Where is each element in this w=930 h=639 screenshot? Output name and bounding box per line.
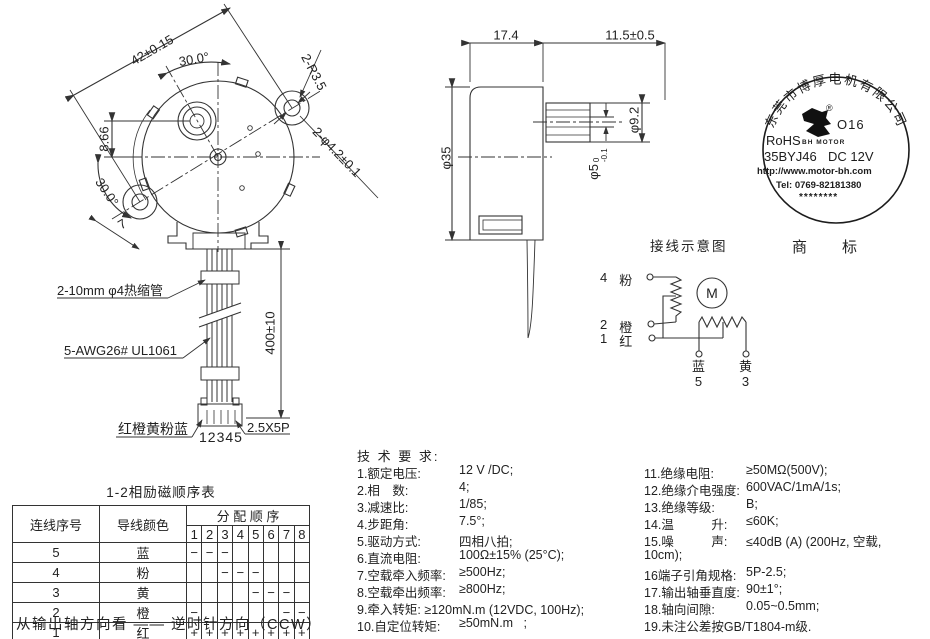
tech-requirements-right: 11.绝缘电阻:≥50MΩ(500V); 12.绝缘介电强度:600VAC/1m…	[644, 463, 930, 633]
dim-side-body-dia: φ35	[440, 147, 453, 170]
table-header-row: 连线序号 导线颜色 分 配 顺 序	[13, 506, 310, 526]
seq-cell: −	[217, 543, 232, 563]
table-row: 5 蓝 − − −	[13, 543, 310, 563]
tech-item: 9.牵入转矩: ≥120mN.m (12VDC, 100Hz);	[357, 599, 643, 616]
seq-cell	[187, 583, 202, 603]
tech-item-value: 5P-2.5;	[746, 565, 786, 579]
step-col: 6	[263, 526, 278, 543]
tech-item: 8.空载牵出频率:≥800Hz;	[357, 582, 643, 599]
tech-item: 19.未注公差按GB/T1804-m级.	[644, 616, 930, 633]
tech-item-value: ≥50MΩ(500V);	[746, 463, 828, 477]
tech-item: 2.相 数:4;	[357, 480, 643, 497]
seq-cell: −	[263, 583, 278, 603]
step-col: 1	[187, 526, 202, 543]
seq-cell	[248, 543, 263, 563]
terminal-3-color: 黄	[739, 359, 752, 374]
seq-cell: −	[233, 563, 248, 583]
stamp-code: O16	[837, 117, 865, 132]
dim-side-shaft-length: 11.5±0.5	[605, 29, 655, 42]
step-col: 2	[202, 526, 217, 543]
wiring-diagram-drawing	[647, 274, 749, 357]
wire-number-cell: 4	[13, 563, 100, 583]
step-col: 4	[233, 526, 248, 543]
shaft-dia-tolerance: 0-0.1	[593, 148, 609, 162]
tech-item-label: 19.未注公差按GB/T1804-m级.	[644, 616, 811, 635]
phase-table-title: 1-2相励磁顺序表	[12, 481, 310, 501]
header-sequence: 分 配 顺 序	[187, 506, 310, 526]
stamp-rohs: RoHS	[766, 133, 801, 148]
tech-item: 12.绝缘介电强度:600VAC/1mA/1s;	[644, 480, 930, 497]
pin-numbers-label: 12345	[199, 430, 243, 444]
rotation-direction-note: 从输出轴方向看 —— 逆时针方向（CCW）	[16, 613, 322, 634]
terminal-1-red: 1 红	[600, 331, 632, 350]
dim-front-offset: 8.66	[98, 126, 111, 151]
seq-cell	[263, 563, 278, 583]
terminal-3-yellow: 黄 3	[739, 359, 752, 389]
tech-item: 11.绝缘电阻:≥50MΩ(500V);	[644, 463, 930, 480]
front-view-drawing	[70, 4, 378, 252]
stamp-company-arc-text: 东莞市博厚电机有限公司	[762, 72, 910, 130]
tech-item-value: 12 V /DC;	[459, 463, 513, 477]
seq-cell: −	[202, 543, 217, 563]
stamp-tel: Tel: 0769-82181380	[776, 180, 861, 191]
seq-cell	[233, 543, 248, 563]
seq-cell	[294, 583, 309, 603]
terminal-4-number: 4	[600, 270, 607, 289]
wire-spec-label: 5-AWG26# UL1061	[64, 344, 177, 357]
tech-item: 14.温 升:≤60K;	[644, 514, 930, 531]
terminal-4-color: 粉	[619, 270, 632, 289]
dim-cable-length: 400±10	[264, 311, 277, 354]
engineering-drawing-page: 东莞市博厚电机有限公司 42±0.15 30.0° 8.66 30.0° 7 2…	[0, 0, 930, 639]
stamp-model: 35BYJ46	[764, 149, 817, 164]
stamp-voltage: DC 12V	[828, 149, 874, 164]
tech-item: 15.噪 声:≤40dB (A) (200Hz, 空载,	[644, 531, 930, 548]
dim-side-shaft-dia: φ50-0.1	[587, 148, 609, 179]
tech-item: 16端子引角规格:5P-2.5;	[644, 565, 930, 582]
seq-cell: −	[279, 583, 294, 603]
tech-item-label: 10.自定位转矩:	[357, 616, 459, 635]
tol-lower: -0.1	[601, 148, 609, 162]
tech-item-value: ≥500Hz;	[459, 565, 505, 579]
seq-cell	[263, 543, 278, 563]
terminal-1-number: 1	[600, 331, 607, 350]
seq-cell	[233, 583, 248, 603]
tech-item: 13.绝缘等级:B;	[644, 497, 930, 514]
terminal-1-color: 红	[619, 331, 632, 350]
tech-item-value: 100Ω±15% (25°C);	[459, 548, 564, 562]
tech-item: 10cm);	[644, 548, 930, 565]
tech-item-value: ≥800Hz;	[459, 582, 505, 596]
tech-item: 7.空载牵入频率:≥500Hz;	[357, 565, 643, 582]
seq-cell	[202, 563, 217, 583]
seq-cell	[294, 543, 309, 563]
tech-item-value: 600VAC/1mA/1s;	[746, 480, 841, 494]
seq-cell	[279, 563, 294, 583]
tech-item-value: 4;	[459, 480, 469, 494]
stamp-stars: ********	[799, 192, 838, 203]
trademark-label: 商标	[792, 240, 892, 255]
shaft-dia-value: φ5	[586, 164, 601, 180]
tech-item: 4.步距角:7.5°;	[357, 514, 643, 531]
tech-requirements-title: 技 术 要 求:	[357, 446, 643, 463]
terminal-5-color: 蓝	[692, 359, 705, 374]
tech-requirements-left: 技 术 要 求: 1.额定电压:12 V /DC; 2.相 数:4; 3.减速比…	[357, 446, 643, 633]
seq-cell: −	[217, 563, 232, 583]
wire-number-cell: 3	[13, 583, 100, 603]
tech-item: 18.轴向间隙:0.05~0.5mm;	[644, 599, 930, 616]
step-col: 3	[217, 526, 232, 543]
table-row: 4 粉 − − −	[13, 563, 310, 583]
tech-item-label: 10cm);	[644, 548, 746, 562]
tech-item-value: 1/85;	[459, 497, 487, 511]
stamp-url: http://www.motor-bh.com	[757, 166, 872, 177]
wire-colors-label: 红橙黄粉蓝	[118, 422, 188, 436]
wiring-diagram-title: 接线示意图	[650, 240, 728, 254]
registered-mark: ®	[826, 103, 833, 113]
terminal-3-number: 3	[742, 374, 749, 389]
seq-cell: −	[187, 543, 202, 563]
dim-side-depth: 17.4	[493, 29, 518, 42]
tech-item-value: 0.05~0.5mm;	[746, 599, 819, 613]
step-col: 5	[248, 526, 263, 543]
tech-item: 3.减速比:1/85;	[357, 497, 643, 514]
header-wire-number: 连线序号	[13, 506, 100, 543]
table-row: 3 黄 − − −	[13, 583, 310, 603]
seq-cell	[217, 583, 232, 603]
motor-symbol: M	[706, 286, 718, 300]
seq-cell	[294, 563, 309, 583]
terminal-5-blue: 蓝 5	[692, 359, 705, 389]
seq-cell: −	[248, 563, 263, 583]
tech-item-value: 90±1°;	[746, 582, 782, 596]
seq-cell	[202, 583, 217, 603]
tech-item: 17.输出轴垂直度:90±1°;	[644, 582, 930, 599]
heat-shrink-label: 2-10mm φ4热缩管	[57, 284, 163, 297]
seq-cell	[279, 543, 294, 563]
seq-cell	[187, 563, 202, 583]
terminal-5-number: 5	[695, 374, 702, 389]
header-wire-color: 导线颜色	[100, 506, 187, 543]
wire-color-cell: 粉	[100, 563, 187, 583]
tech-item-value: 7.5°;	[459, 514, 485, 528]
tech-item: 1.额定电压:12 V /DC;	[357, 463, 643, 480]
wire-number-cell: 5	[13, 543, 100, 563]
tech-item: 6.直流电阻:100Ω±15% (25°C);	[357, 548, 643, 565]
seq-cell: −	[248, 583, 263, 603]
tech-item-value: ≤60K;	[746, 514, 779, 528]
tech-item-value: ≥50mN.m ;	[459, 616, 527, 630]
tech-item-value: ≤40dB (A) (200Hz, 空载,	[746, 531, 881, 550]
tech-item-value: B;	[746, 497, 758, 511]
tech-item: 5.驱动方式:四相八拍;	[357, 531, 643, 548]
stamp-logo-caption: BH MOTOR	[802, 139, 845, 146]
step-col: 8	[294, 526, 309, 543]
side-view-drawing	[445, 43, 665, 338]
wire-color-cell: 黄	[100, 583, 187, 603]
dim-side-bushing-dia: φ9.2	[628, 107, 641, 134]
tech-item: 10.自定位转矩:≥50mN.m ;	[357, 616, 643, 633]
step-col: 7	[279, 526, 294, 543]
terminal-4-pink: 4 粉	[600, 270, 632, 289]
connector-type-label: 2.5X5P	[247, 421, 290, 434]
wire-color-cell: 蓝	[100, 543, 187, 563]
